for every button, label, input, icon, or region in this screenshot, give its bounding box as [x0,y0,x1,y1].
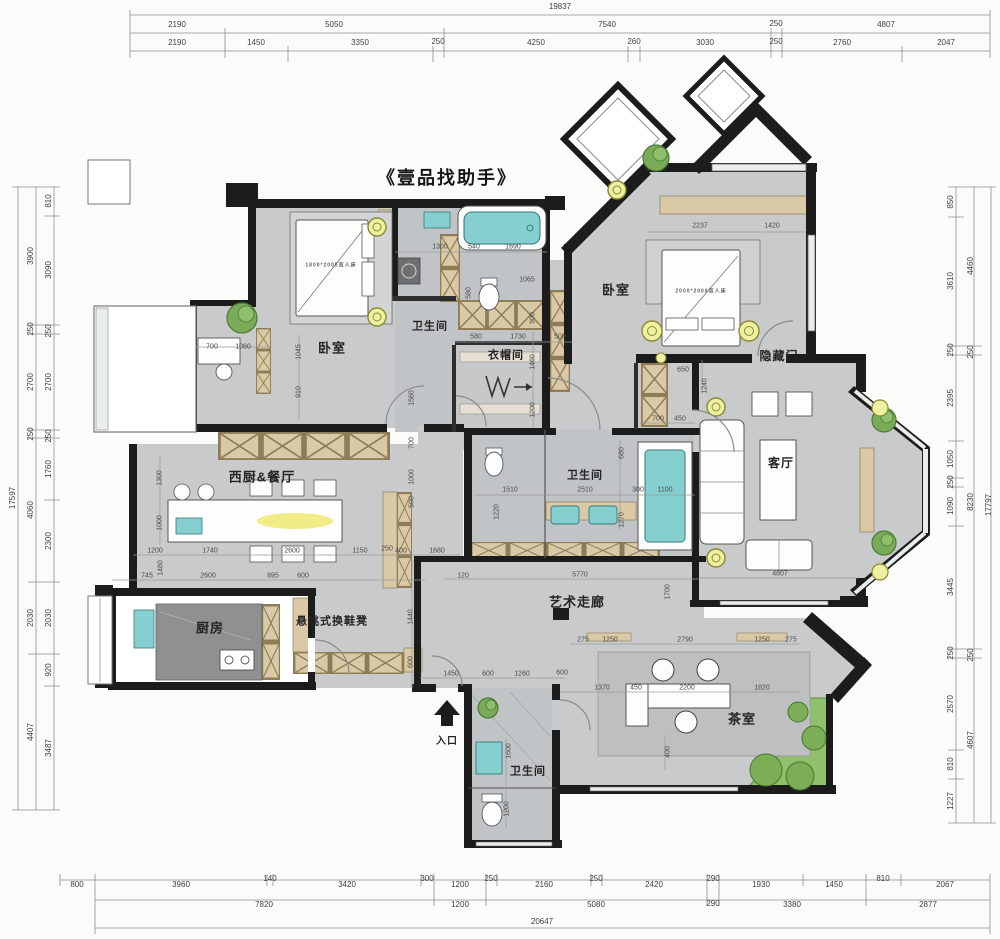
sink-icon [476,742,502,774]
sink-icon [589,506,617,524]
toilet-icon [479,278,499,310]
bedroom-right-side-window [808,235,815,331]
sink-icon [551,506,579,524]
plant-icon [872,531,896,555]
bedroom-right-top-window [712,164,806,171]
armchair-icon [786,392,812,416]
ceiling-lamp-icon [739,321,759,341]
tea-table-icon [598,652,810,756]
ceiling-lamp-icon [872,400,888,416]
ceiling-lamp-icon [642,321,662,341]
floor-plan-drawing [0,0,1000,939]
bathroom-bottom-window [476,842,552,846]
ceiling-lamp-icon [608,181,626,199]
ceiling-lamp-icon [368,218,386,236]
ceiling-lamp-icon [368,308,386,326]
bay-window-nook [94,306,196,432]
ceiling-lamp-icon [707,549,725,567]
plant-icon [643,145,669,171]
plant-icon [227,303,257,333]
bathtub-icon [458,206,546,250]
ceiling-lamp-icon [872,564,888,580]
desk-icon [198,338,240,364]
plant-icon [478,698,498,718]
bathtub-icon [638,442,692,550]
chair-icon [216,364,232,380]
top-left-window [88,160,130,204]
toilet-icon [482,794,502,826]
floor-plan-canvas: 《壹品找助手》 19837219050507540250480721901450… [0,0,1000,939]
toilet-icon [485,448,503,476]
armchair-icon [752,392,778,416]
coffee-table-icon [760,440,796,520]
wardrobe-rod [460,352,540,362]
ceiling-lamp-icon [656,353,666,363]
washer-icon [398,258,420,284]
sink-icon [424,212,450,228]
entry-arrow-icon [434,700,460,726]
tea-room-window [590,787,738,791]
wardrobe-rod [460,404,540,414]
